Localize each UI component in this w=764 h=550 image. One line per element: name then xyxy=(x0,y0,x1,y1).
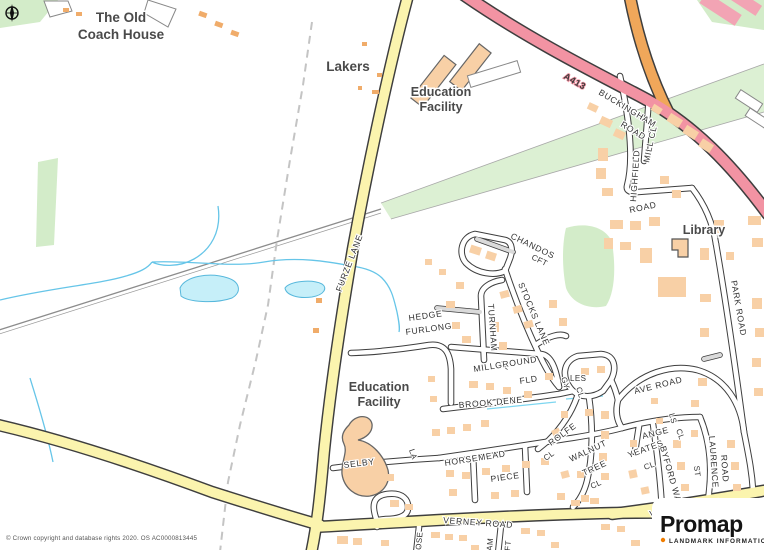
label-education-facility-south: Facility xyxy=(357,395,400,409)
label-lakers: Lakers xyxy=(326,59,370,74)
label-old-coach-house: Coach House xyxy=(78,27,165,42)
label-st-laurence: ST xyxy=(692,465,702,477)
road-southwest xyxy=(0,424,320,525)
track-line xyxy=(0,213,381,335)
pond xyxy=(285,281,325,297)
logo-bullet-icon xyxy=(661,538,665,542)
stream xyxy=(152,206,219,265)
label-partial-street: AM xyxy=(485,538,495,550)
logo-brand: Promap xyxy=(660,511,743,537)
promap-logo: Promap LANDMARK INFORMATION xyxy=(652,498,764,550)
map-svg: The Old Coach House Lakers Education Fac… xyxy=(0,0,764,550)
green-area xyxy=(36,158,58,247)
label-turnham: TURNHAM xyxy=(486,303,499,351)
label-old-coach-house: The Old xyxy=(96,10,146,25)
label-hedge-furlong: FURLONG xyxy=(405,321,453,337)
label-partial-street: FT xyxy=(503,540,513,550)
copyright-text: © Crown copyright and database rights 20… xyxy=(6,535,197,542)
stream xyxy=(0,262,152,300)
pond xyxy=(180,275,238,301)
label-angels-cl: CL xyxy=(674,428,686,442)
label-walnut-tree-cl: CL xyxy=(589,478,603,491)
label-brook-dene: BROOK DENE xyxy=(458,394,523,410)
green-area xyxy=(563,225,614,307)
label-hedge-furlong: HEDGE xyxy=(408,308,443,323)
label-gyles: LES xyxy=(570,374,586,383)
label-horsemead-piece: PIECE xyxy=(490,470,520,484)
label-yeates-cl: CL xyxy=(643,460,657,472)
label-partial-street: OSE xyxy=(414,531,425,550)
map-canvas[interactable]: The Old Coach House Lakers Education Fac… xyxy=(0,0,764,550)
road-stocks xyxy=(505,269,559,387)
label-education-facility-north: Facility xyxy=(419,100,462,114)
label-library: Library xyxy=(683,223,725,237)
map-labels: The Old Coach House Lakers Education Fac… xyxy=(78,10,749,550)
track-line xyxy=(0,209,381,331)
logo-subtitle: LANDMARK INFORMATION xyxy=(669,538,764,545)
stream xyxy=(30,378,53,462)
label-st-laurence-road: ROAD xyxy=(719,454,731,482)
label-angels: LS xyxy=(667,412,678,425)
track-lines xyxy=(0,209,381,335)
label-education-facility-north: Education xyxy=(411,85,471,99)
corridor-border xyxy=(391,112,764,219)
label-millground-fld: FLD xyxy=(519,373,539,386)
building-library xyxy=(672,239,688,257)
label-education-facility-south: Education xyxy=(349,380,409,394)
building-outline xyxy=(144,0,176,27)
